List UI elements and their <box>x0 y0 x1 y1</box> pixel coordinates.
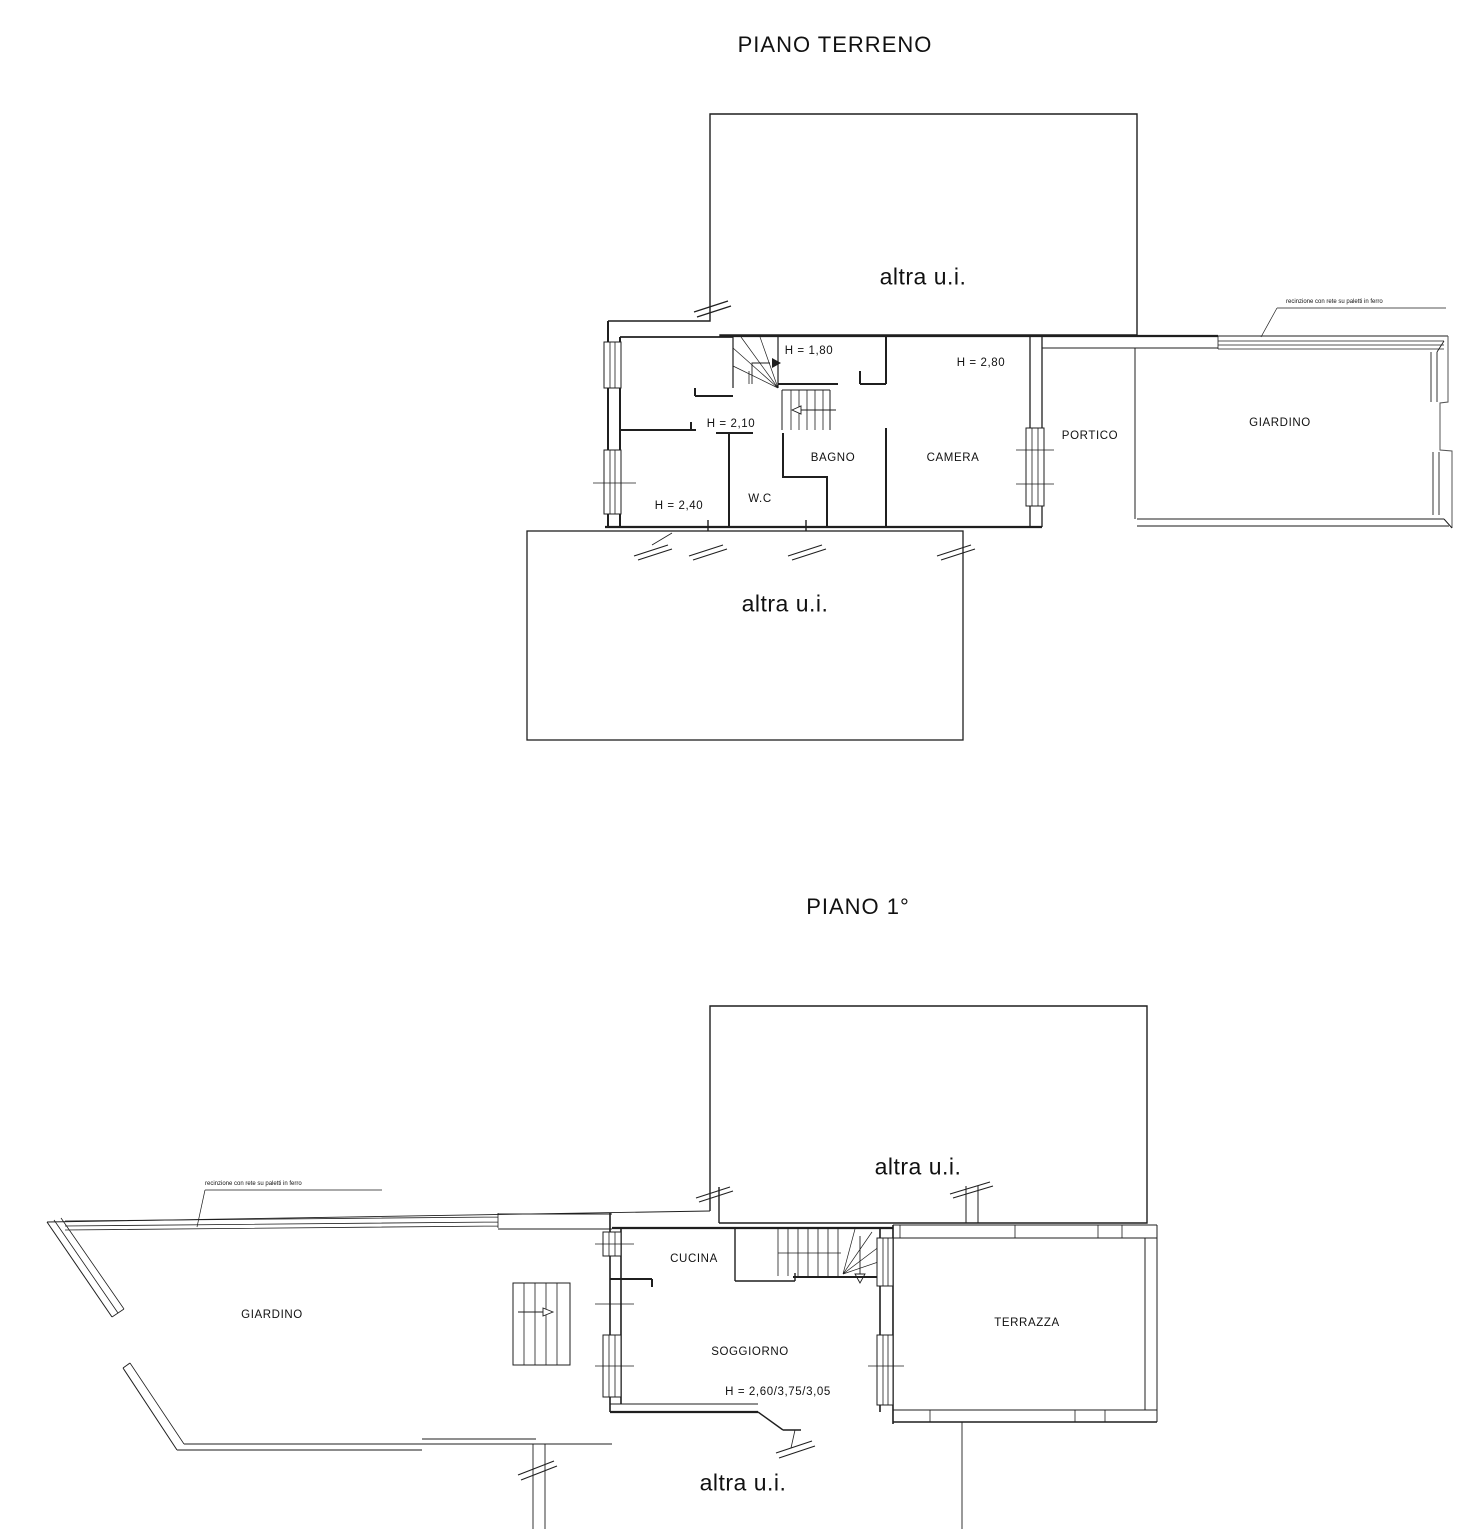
ground-floor-linework <box>527 114 1452 740</box>
gf-straight-stair <box>782 390 836 430</box>
gf-break-mark-top <box>694 301 731 317</box>
ff-terrazza <box>893 1225 1157 1529</box>
ff-other-unit-bottom-label: altra u.i. <box>700 1470 787 1497</box>
gf-room-giardino-label: GIARDINO <box>1249 417 1311 429</box>
ff-stair <box>735 1229 890 1283</box>
ff-break-mark-left <box>696 1187 733 1202</box>
ff-bottom-wall <box>610 1404 815 1458</box>
gf-camera-portico-wall <box>1016 336 1054 527</box>
gf-room-portico-label: PORTICO <box>1062 430 1118 442</box>
gf-height-mid-label: H = 2,10 <box>707 418 756 430</box>
gf-height-camera-label: H = 2,80 <box>957 357 1006 369</box>
ff-fence-note-leader <box>197 1190 382 1227</box>
ground-floor-title: PIANO TERRENO <box>738 32 933 58</box>
gf-fence-note: recinzione con rete su paletti in ferro <box>1286 299 1383 305</box>
gf-garden-fence <box>1137 336 1452 528</box>
ff-cucina-wall-stub <box>610 1279 652 1287</box>
ff-other-unit-top-outline <box>710 1006 1147 1223</box>
ff-left-windows <box>595 1232 634 1397</box>
ff-other-unit-top-label: altra u.i. <box>875 1154 962 1181</box>
gf-other-unit-top-label: altra u.i. <box>880 264 967 291</box>
gf-height-left-label: H = 2,40 <box>655 500 704 512</box>
ff-room-terrazza-label: TERRAZZA <box>994 1317 1060 1329</box>
gf-room-bagno-label: BAGNO <box>811 452 856 464</box>
gf-winder-stair <box>733 337 781 388</box>
first-floor-title: PIANO 1° <box>806 894 910 920</box>
floor-plan-sheet: PIANO TERRENO altra u.i. H = 1,80 H = 2,… <box>0 0 1458 1529</box>
gf-fence-note-leader <box>1261 308 1446 337</box>
gf-camera-window <box>1026 428 1044 506</box>
gf-left-windows <box>593 342 636 514</box>
gf-other-unit-bottom-outline <box>527 531 963 740</box>
ff-fence-note: recinzione con rete su paletti in ferro <box>205 1181 302 1187</box>
gf-room-wc-label: W.C <box>748 493 772 505</box>
plan-linework <box>0 0 1458 1529</box>
ff-room-cucina-label: CUCINA <box>670 1253 718 1265</box>
first-floor-linework <box>47 1006 1157 1529</box>
ff-room-giardino-label: GIARDINO <box>241 1309 303 1321</box>
gf-other-unit-top-outline <box>608 114 1137 337</box>
ff-right-windows <box>868 1238 904 1405</box>
ff-garden-stair <box>513 1283 570 1365</box>
ff-height-soggiorno-label: H = 2,60/3,75/3,05 <box>725 1386 831 1398</box>
ff-room-soggiorno-label: SOGGIORNO <box>711 1346 789 1358</box>
gf-other-unit-bottom-label: altra u.i. <box>742 591 829 618</box>
gf-height-stair-label: H = 1,80 <box>785 345 834 357</box>
ff-break-mark-right <box>950 1182 993 1198</box>
gf-room-camera-label: CAMERA <box>927 452 980 464</box>
